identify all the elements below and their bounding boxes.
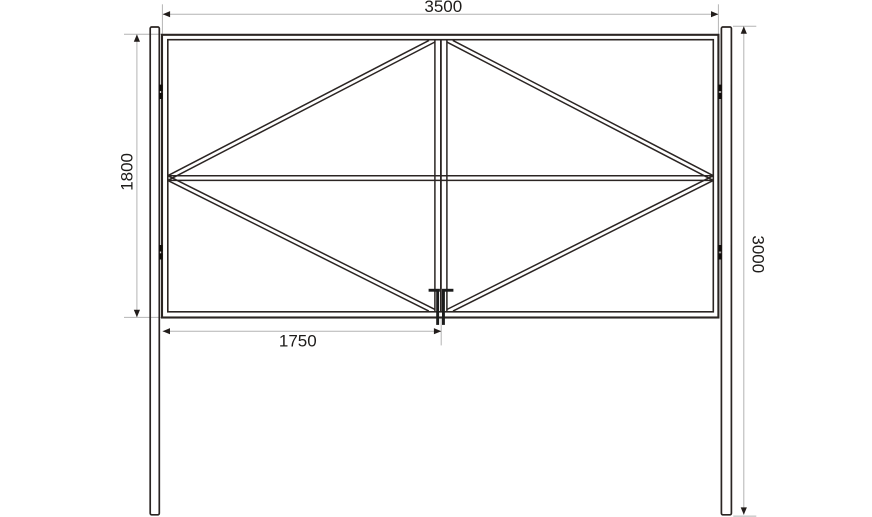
svg-text:3500: 3500 (424, 0, 462, 16)
svg-text:3000: 3000 (749, 235, 768, 273)
svg-text:1750: 1750 (279, 331, 317, 350)
svg-text:1800: 1800 (117, 153, 136, 191)
